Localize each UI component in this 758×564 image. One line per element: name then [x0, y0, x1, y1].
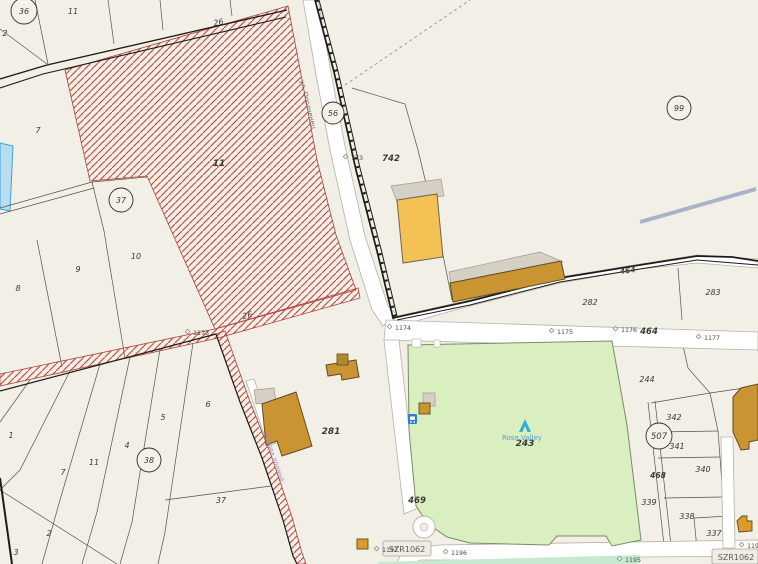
parcel-label-5: 5 — [160, 413, 165, 422]
parcel-label-282: 282 — [582, 298, 597, 307]
survey-label-1176: 1176 — [621, 327, 637, 334]
parcel-label-6: 6 — [205, 400, 210, 409]
parcel-label-244: 244 — [639, 375, 654, 384]
park-hut — [419, 403, 430, 414]
survey-label-1175: 1175 — [557, 329, 573, 336]
parcel-label-281: 281 — [322, 427, 341, 437]
survey-label-1194: 1194 — [747, 543, 758, 550]
survey-label-1196: 1196 — [451, 550, 467, 557]
parcel-label-11-top: 11 — [68, 7, 78, 16]
parcel-label-340: 340 — [695, 465, 710, 474]
parcel-label-9: 9 — [75, 265, 80, 274]
parcel-label-341: 341 — [669, 442, 684, 451]
roundabout-island — [420, 523, 428, 531]
parcel-label-2b: 2 — [46, 529, 51, 538]
parcel-label-4: 4 — [124, 441, 129, 450]
park-name-label: Rose Valley — [502, 434, 542, 442]
parcel-label-342: 342 — [666, 413, 681, 422]
survey-label-1173: 1173 — [193, 330, 209, 337]
circle-38-label: 38 — [144, 456, 154, 465]
parcel-label-10: 10 — [131, 252, 141, 261]
parcel-label-11-hatched: 11 — [213, 159, 226, 169]
map-canvas[interactable]: SZR1062 SZR1062 773 1173 1174 1175 1176 … — [0, 0, 758, 564]
map-viewport[interactable]: SZR1062 SZR1062 773 1173 1174 1175 1176 … — [0, 0, 758, 564]
right-stub-road — [721, 437, 735, 548]
circle-56-label: 56 — [328, 109, 338, 118]
bus-stop-icon[interactable] — [408, 414, 417, 424]
parcel-label-1: 1 — [8, 431, 13, 440]
parcel-label-338: 338 — [679, 512, 694, 521]
road-label-742: 742 — [382, 154, 400, 164]
road-label-464: 464 — [639, 327, 658, 337]
survey-label-1174: 1174 — [395, 325, 411, 332]
park-entrance-gap-2 — [434, 340, 440, 347]
circle-36-label: 36 — [19, 7, 29, 16]
building-tower — [337, 354, 348, 365]
parcel-label-2-top: 2 — [2, 29, 7, 38]
parcel-label-8: 8 — [15, 284, 20, 293]
road-label-469: 469 — [407, 496, 426, 506]
circle-507-label: 507 — [651, 432, 668, 442]
circle-37-label: 37 — [116, 196, 127, 205]
parcel-label-339: 339 — [641, 498, 656, 507]
building-right-edge — [733, 384, 758, 450]
parcel-label-468: 468 — [650, 471, 666, 480]
survey-label-1197: 1197 — [382, 547, 398, 554]
survey-label-1195: 1195 — [625, 557, 641, 564]
parcel-label-283: 283 — [705, 288, 720, 297]
parcel-label-11b: 11 — [89, 458, 99, 467]
circle-99-label: 99 — [674, 104, 684, 113]
parcel-label-3: 3 — [13, 548, 18, 557]
park-entrance-gap — [412, 339, 421, 347]
parcel-label-337: 337 — [706, 529, 722, 538]
road-ref-right-label: SZR1062 — [718, 553, 754, 562]
parcel-label-37b: 37 — [216, 496, 227, 505]
road-label-464-diag: 464 — [619, 265, 636, 276]
survey-label-773: 773 — [351, 155, 363, 162]
building-amber — [397, 194, 443, 263]
building-bottom-small — [357, 539, 368, 549]
survey-label-1177: 1177 — [704, 335, 720, 342]
